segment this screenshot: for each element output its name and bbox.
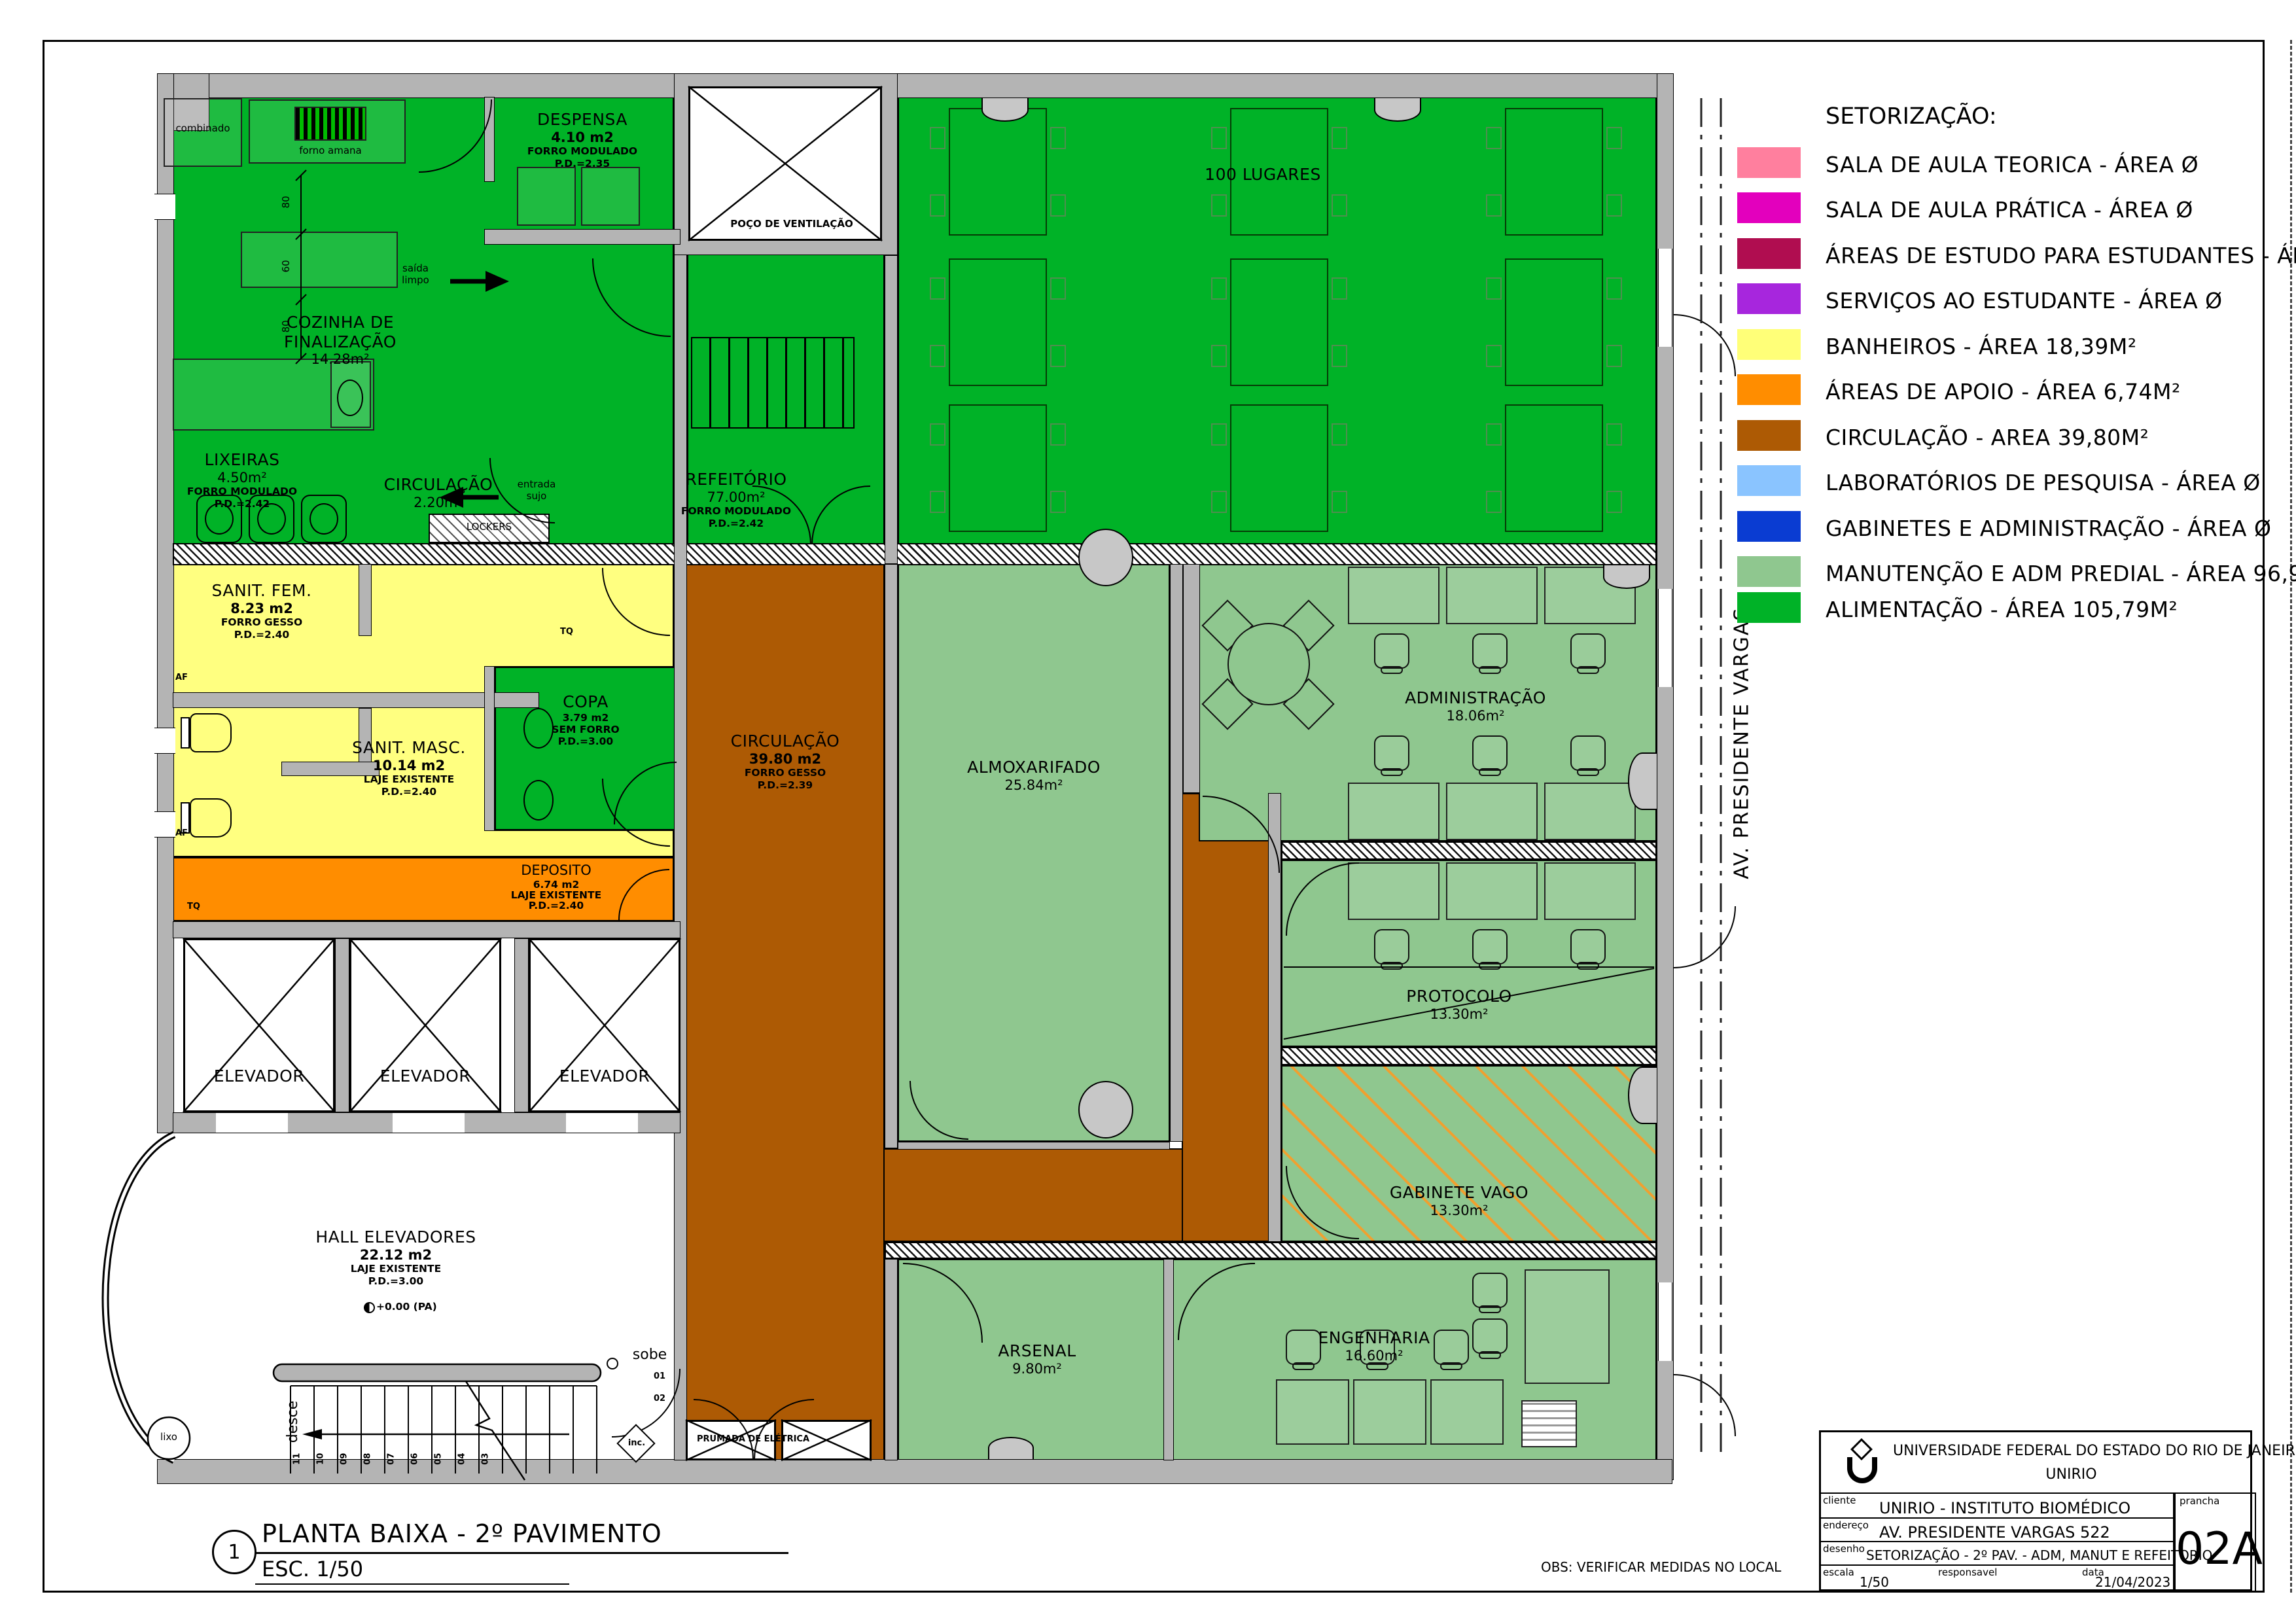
label-hall: HALL ELEVADORES 22.12 m2 LAJE EXISTENTE … [288,1227,504,1287]
title-block: UNIVERSIDADE FEDERAL DO ESTADO DO RIO DE… [1819,1430,2252,1591]
label-forno: forno amana [285,145,376,157]
label-level: +0.00 (PA) [376,1301,481,1313]
label-circulacao: CIRCULAÇÃO 39.80 m2 FORRO GESSO P.D.=2.3… [694,732,877,791]
legend-label-servicos: SERVIÇOS AO ESTUDANTE - ÁREA Ø [1826,288,2223,313]
legend-swatch-estudo [1737,238,1801,269]
legend-label-circulacao: CIRCULAÇÃO - AREA 39,80M² [1826,425,2149,450]
legend-swatch-banheiros [1737,329,1801,360]
stair-num: 09 [339,1449,349,1470]
label-poco: POÇO DE VENTILAÇÃO [710,219,874,230]
legend-swatch-alimentacao [1737,592,1801,623]
org-line1: UNIVERSIDADE FEDERAL DO ESTADO DO RIO DE… [1893,1443,2250,1459]
label-lixeiras: LIXEIRAS 4.50m² FORRO MODULADO P.D.=2.42 [157,450,327,510]
label-s02: 02 [646,1394,673,1403]
label-gabinete: GABINETE VAGO 13.30m² [1361,1183,1557,1218]
stair-num: 08 [362,1449,372,1470]
stair-num: 04 [457,1449,467,1470]
label-deposito: DEPOSITO 6.74 m2 LAJE EXISTENTE P.D.=2.4… [458,862,654,911]
label-sanit-masc: SANIT. MASC. 10.14 m2 LAJE EXISTENTE P.D… [327,738,491,798]
legend-label-alimentacao: ALIMENTAÇÃO - ÁREA 105,79M² [1826,597,2178,622]
label-combinado: combinado [165,123,241,135]
label-engenharia: ENGENHARIA 16.60m² [1276,1328,1472,1364]
legend-label-sala-pratica: SALA DE AULA PRÁTICA - ÁREA Ø [1826,197,2193,222]
legend-label-gabinetes: GABINETES E ADMINISTRAÇÃO - ÁREA Ø [1826,516,2271,541]
label-circ-cozinha: CIRCULAÇÃO 2.20m² [366,475,510,510]
label-s01: 01 [646,1371,673,1381]
legend-label-sala-teorica: SALA DE AULA TEORICA - ÁREA Ø [1826,152,2199,177]
label-copa: COPA 3.79 m2 SEM FORRO P.D.=3.00 [517,692,654,747]
cell-escala: escala 1/50 responsavel data 21/04/2023 [1819,1564,2174,1592]
label-tq-2: TQ [187,902,213,911]
legend-label-banheiros: BANHEIROS - ÁREA 18,39M² [1826,334,2137,359]
cell-desenho: desenho SETORIZAÇÃO - 2º PAV. - ADM, MAN… [1819,1541,2174,1566]
legend-swatch-sala-teorica [1737,147,1801,178]
label-lixo: lixo [149,1432,188,1443]
label-cozinha: COZINHA DE FINALIZAÇÃO 14.28m² [249,313,432,368]
stair-num: 05 [433,1449,443,1470]
cell-prancha: prancha 02A [2174,1492,2256,1592]
legend-swatch-laboratorios [1737,465,1801,496]
legend-title: SETORIZAÇÃO: [1826,103,2100,130]
label-elevador-1: ELEVADOR [183,1067,335,1086]
title-underline [255,1552,788,1554]
dim-60: 60 [281,253,292,279]
drawing-title: PLANTA BAIXA - 2º PAVIMENTO [262,1519,805,1549]
label-tq-1: TQ [560,627,586,637]
drawing-scale: ESC. 1/50 [262,1557,458,1582]
unirio-logo [1839,1441,1885,1485]
legend-swatch-manutencao [1737,556,1801,587]
view-number-circle: 1 [212,1530,256,1574]
legend-label-manutencao: MANUTENÇÃO E ADM PREDIAL - ÁREA 96,90M² [1826,561,2296,586]
label-arsenal: ARSENAL 9.80m² [962,1341,1112,1377]
cell-endereco: endereço AV. PRESIDENTE VARGAS 522 [1819,1517,2174,1542]
scale-underline [255,1583,569,1585]
label-despensa: DESPENSA 4.10 m2 FORRO MODULADO P.D.=2.3… [504,110,661,169]
stair-num: 10 [315,1449,325,1470]
label-desce: desce [285,1389,302,1455]
label-protocolo: PROTOCOLO 13.30m² [1368,987,1551,1022]
stair-num: 06 [410,1449,419,1470]
label-refeitorio: REFEITÓRIO 77.00m² FORRO MODULADO P.D.=2… [661,470,811,529]
label-seats: 100 LUGARES [1178,165,1348,185]
legend-swatch-servicos [1737,283,1801,314]
cell-cliente: cliente UNIRIO - INSTITUTO BIOMÉDICO [1819,1492,2174,1519]
label-prumada: PRUMADA DE ELÉTRICA [684,1434,822,1444]
legend-label-estudo: ÁREAS DE ESTUDO PARA ESTUDANTES - ÁREA Ø [1826,243,2296,268]
label-sanit-fem: SANIT. FEM. 8.23 m2 FORRO GESSO P.D.=2.4… [183,581,340,641]
label-sobe: sobe [620,1347,679,1364]
label-af-1: AF [175,673,202,682]
level-marker [364,1302,375,1313]
stair-num: 07 [386,1449,396,1470]
dim-80-top: 80 [281,189,292,215]
stair-num: 03 [480,1449,490,1470]
label-almoxarifado: ALMOXARIFADO 25.84m² [936,758,1132,793]
label-elevador-3: ELEVADOR [529,1067,680,1086]
label-inc: inc. [620,1438,653,1448]
dim-80-bottom: 80 [281,313,292,340]
legend-swatch-sala-pratica [1737,192,1801,223]
label-af-2: AF [175,828,202,838]
legend-label-laboratorios: LABORATÓRIOS DE PESQUISA - ÁREA Ø [1826,470,2261,495]
legend-swatch-gabinetes [1737,511,1801,542]
label-entrada: entrada sujo [504,479,569,502]
stair-num: 11 [292,1449,302,1470]
legend-swatch-circulacao [1737,420,1801,451]
label-administracao: ADMINISTRAÇÃO 18.06m² [1368,688,1583,724]
label-elevador-2: ELEVADOR [349,1067,501,1086]
legend-label-apoio: ÁREAS DE APOIO - ÁREA 6,74M² [1826,379,2181,404]
obs-note: OBS: VERIFICAR MEDIDAS NO LOCAL [1541,1560,1816,1576]
label-lockers: LOCKERS [429,521,550,533]
org-line2: UNIRIO [1893,1466,2250,1483]
label-saida: saída limpo [386,263,445,286]
legend-swatch-apoio [1737,374,1801,405]
